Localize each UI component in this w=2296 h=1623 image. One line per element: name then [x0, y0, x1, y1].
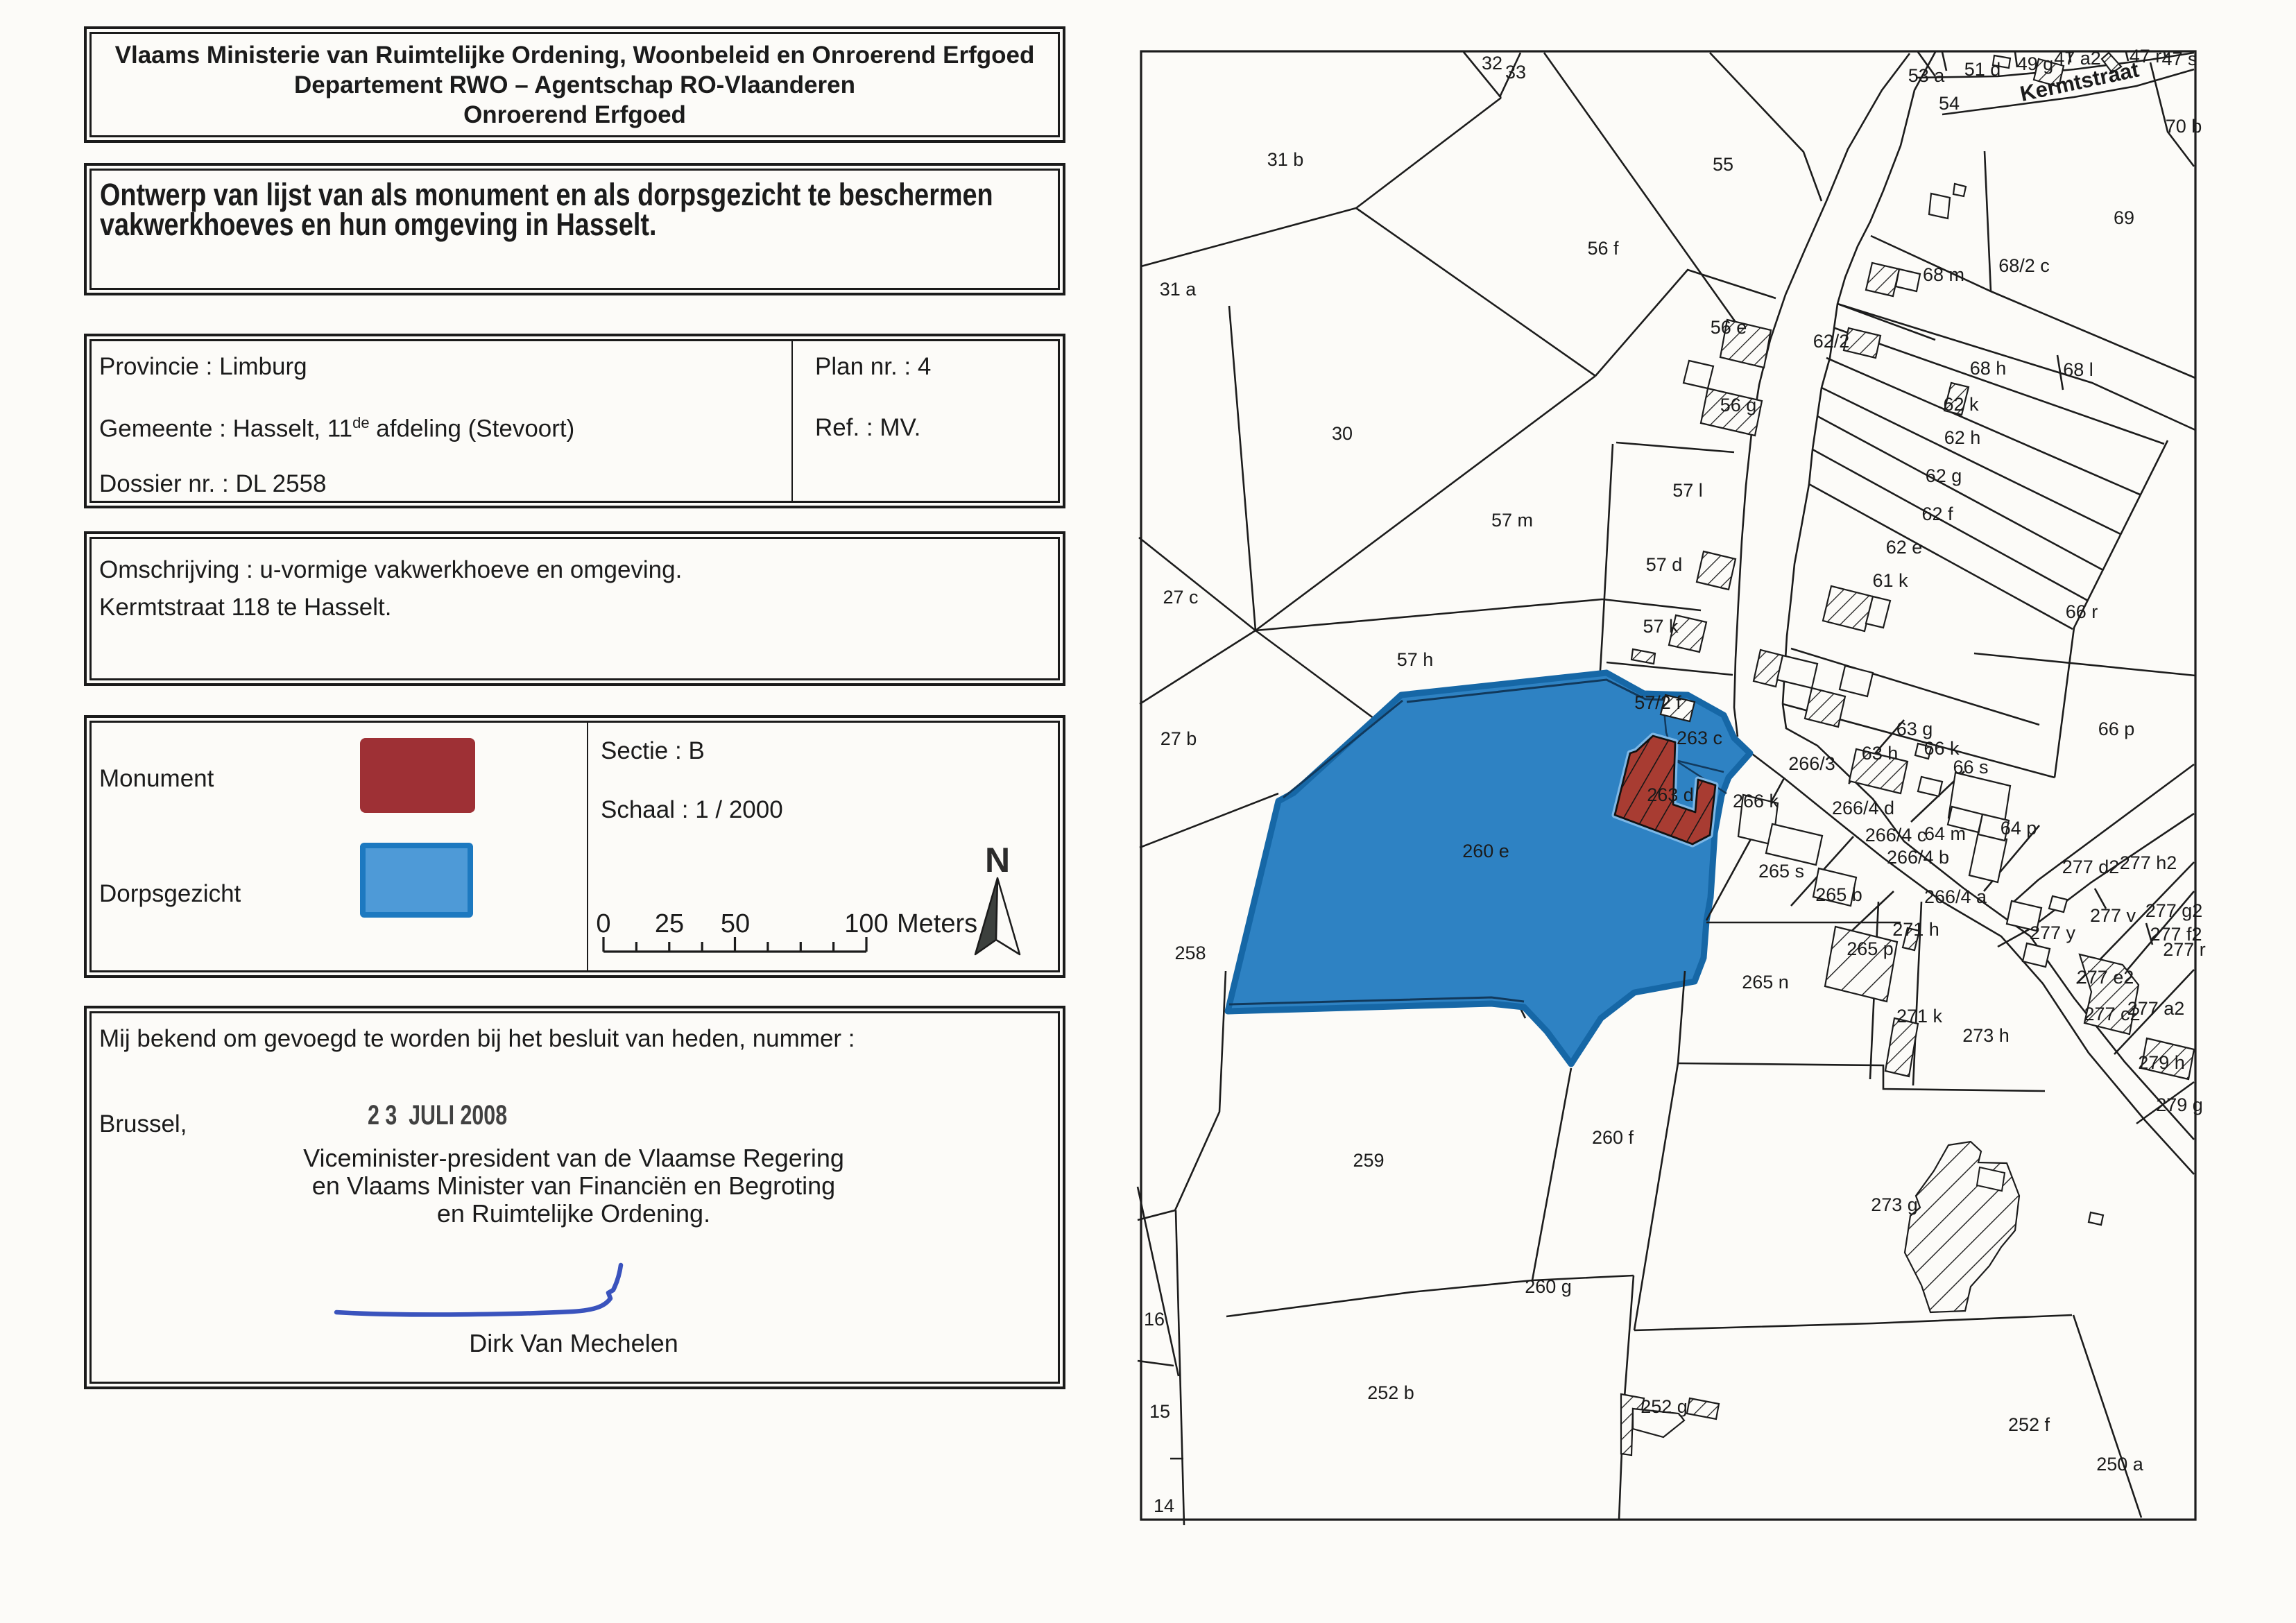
svg-text:56 e: 56 e — [1711, 317, 1747, 338]
svg-text:62 h: 62 h — [1944, 427, 1981, 448]
svg-text:57 l: 57 l — [1672, 480, 1703, 501]
svg-text:68/2 c: 68/2 c — [1998, 255, 2050, 276]
svg-text:61 k: 61 k — [1872, 570, 1908, 591]
svg-text:252 b: 252 b — [1367, 1382, 1414, 1403]
svg-text:277 r: 277 r — [2163, 939, 2206, 960]
svg-text:260 f: 260 f — [1592, 1127, 1634, 1148]
svg-text:30: 30 — [1332, 423, 1353, 444]
svg-text:259: 259 — [1353, 1150, 1384, 1171]
svg-text:266/4 b: 266/4 b — [1887, 847, 1949, 868]
svg-text:273 h: 273 h — [1962, 1025, 2010, 1046]
svg-text:56 f: 56 f — [1587, 238, 1619, 259]
svg-text:57 h: 57 h — [1397, 649, 1434, 670]
svg-text:62 g: 62 g — [1926, 465, 1962, 486]
svg-text:277 e2: 277 e2 — [2077, 967, 2134, 988]
svg-text:66 s: 66 s — [1953, 757, 1988, 778]
svg-text:265 p: 265 p — [1847, 938, 1894, 959]
svg-text:70 b: 70 b — [2166, 116, 2202, 137]
svg-text:56 g: 56 g — [1720, 395, 1757, 415]
svg-text:32: 32 — [1482, 53, 1502, 74]
svg-text:66 k: 66 k — [1924, 738, 1960, 759]
svg-text:57 d: 57 d — [1646, 554, 1683, 575]
svg-text:263 d: 263 d — [1647, 784, 1694, 805]
svg-text:31 b: 31 b — [1267, 149, 1304, 170]
svg-text:27 c: 27 c — [1163, 587, 1198, 608]
svg-text:66 r: 66 r — [2066, 601, 2098, 622]
svg-text:266/4 c: 266/4 c — [1865, 825, 1927, 845]
svg-text:252 f: 252 f — [2008, 1414, 2050, 1435]
svg-text:33: 33 — [1505, 62, 1526, 83]
svg-text:277 d2: 277 d2 — [2062, 857, 2120, 877]
svg-text:266/3: 266/3 — [1788, 753, 1835, 774]
svg-text:68 l: 68 l — [2063, 359, 2093, 380]
svg-text:279 h: 279 h — [2138, 1052, 2185, 1073]
svg-text:66 p: 66 p — [2098, 719, 2135, 739]
svg-text:258: 258 — [1174, 943, 1206, 963]
svg-text:271 h: 271 h — [1892, 919, 1939, 940]
svg-text:49 g: 49 g — [2017, 53, 2054, 74]
svg-text:16: 16 — [1144, 1309, 1165, 1330]
svg-text:265 n: 265 n — [1742, 972, 1789, 993]
svg-text:68 h: 68 h — [1970, 358, 2007, 379]
svg-text:57/2 f: 57/2 f — [1634, 692, 1681, 713]
svg-text:250 a: 250 a — [2096, 1454, 2144, 1475]
svg-text:263 c: 263 c — [1677, 728, 1722, 748]
svg-text:266/4 d: 266/4 d — [1832, 798, 1894, 818]
svg-text:31 a: 31 a — [1160, 279, 1197, 300]
svg-text:277 v: 277 v — [2090, 905, 2136, 926]
svg-text:62/2: 62/2 — [1813, 331, 1850, 352]
svg-text:63 g: 63 g — [1896, 719, 1933, 739]
svg-text:277 a2: 277 a2 — [2127, 998, 2185, 1019]
svg-text:62 k: 62 k — [1943, 394, 1979, 415]
svg-text:15: 15 — [1149, 1401, 1170, 1422]
svg-text:64 p: 64 p — [2001, 818, 2037, 839]
svg-text:252 g: 252 g — [1640, 1396, 1688, 1417]
svg-text:260 e: 260 e — [1462, 841, 1509, 861]
svg-text:62 e: 62 e — [1886, 537, 1923, 558]
svg-text:27 b: 27 b — [1160, 728, 1197, 749]
svg-text:279 g: 279 g — [2156, 1094, 2203, 1115]
svg-text:14: 14 — [1154, 1495, 1174, 1516]
svg-text:53 a: 53 a — [1908, 65, 1946, 86]
svg-text:68 m: 68 m — [1923, 264, 1964, 285]
svg-text:54: 54 — [1939, 93, 1960, 114]
svg-text:62 f: 62 f — [1921, 504, 1953, 524]
svg-text:277 y: 277 y — [2030, 922, 2076, 943]
svg-text:57 k: 57 k — [1643, 616, 1679, 637]
svg-text:64 m: 64 m — [1924, 823, 1966, 844]
svg-text:265 b: 265 b — [1815, 884, 1862, 905]
svg-text:266 k: 266 k — [1733, 791, 1779, 811]
svg-text:271 k: 271 k — [1896, 1006, 1943, 1027]
svg-text:277 h2: 277 h2 — [2120, 852, 2177, 873]
svg-text:69: 69 — [2114, 207, 2134, 228]
svg-text:265 s: 265 s — [1758, 861, 1804, 882]
svg-text:47 s: 47 s — [2161, 49, 2197, 69]
svg-text:277 g2: 277 g2 — [2145, 900, 2203, 921]
svg-text:55: 55 — [1713, 154, 1733, 175]
svg-text:57 m: 57 m — [1491, 510, 1533, 531]
svg-text:273 g: 273 g — [1871, 1194, 1918, 1215]
svg-text:63 h: 63 h — [1862, 743, 1899, 764]
svg-text:51 d: 51 d — [1964, 59, 2001, 80]
svg-text:260 g: 260 g — [1525, 1276, 1572, 1297]
svg-text:266/4 a: 266/4 a — [1924, 886, 1987, 907]
